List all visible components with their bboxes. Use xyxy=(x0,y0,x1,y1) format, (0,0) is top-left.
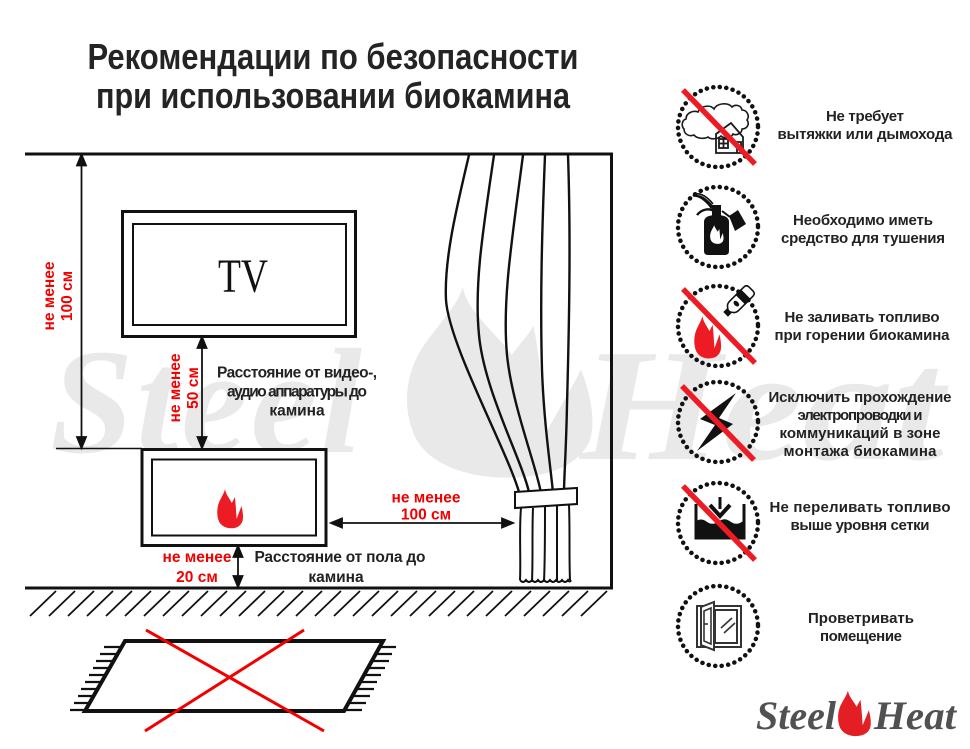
svg-text:при горении биокамина: при горении биокамина xyxy=(775,327,951,344)
svg-text:Steel: Steel xyxy=(756,693,837,738)
svg-text:Исключить прохождение: Исключить прохождение xyxy=(769,389,952,406)
svg-text:камина: камина xyxy=(269,403,325,420)
svg-text:Проветривать: Проветривать xyxy=(808,610,914,627)
svg-text:100 см: 100 см xyxy=(401,507,451,524)
svg-text:Не требует: Не требует xyxy=(826,108,904,125)
svg-text:монтажа биокамина: монтажа биокамина xyxy=(784,443,938,460)
svg-text:не менее: не менее xyxy=(392,490,461,507)
svg-text:коммуникаций в зоне: коммуникаций в зоне xyxy=(780,425,941,442)
svg-text:50 см: 50 см xyxy=(185,367,202,409)
svg-text:не менее: не менее xyxy=(163,549,232,566)
svg-text:вытяжки или дымохода: вытяжки или дымохода xyxy=(778,126,954,143)
svg-text:при использовании биокамина: при использовании биокамина xyxy=(96,75,571,116)
svg-text:аудио аппаратуры до: аудио аппаратуры до xyxy=(227,384,367,401)
svg-text:Рекомендации по безопасности: Рекомендации по безопасности xyxy=(88,36,579,77)
svg-text:электропроводки и: электропроводки и xyxy=(798,407,923,424)
svg-text:помещение: помещение xyxy=(820,628,902,645)
svg-text:TV: TV xyxy=(218,250,268,303)
svg-text:Расстояние от видео-,: Расстояние от видео-, xyxy=(217,365,377,382)
svg-text:выше уровня сетки: выше уровня сетки xyxy=(791,517,930,534)
svg-text:Не заливать топливо: Не заливать топливо xyxy=(785,309,940,326)
svg-text:Heat: Heat xyxy=(873,693,958,738)
svg-text:камина: камина xyxy=(308,569,364,586)
svg-text:Необходимо иметь: Необходимо иметь xyxy=(793,212,933,229)
svg-text:не менее: не менее xyxy=(167,353,184,422)
svg-text:не менее: не менее xyxy=(41,261,58,330)
svg-text:20 см: 20 см xyxy=(176,569,218,586)
svg-text:100 см: 100 см xyxy=(59,271,76,321)
svg-text:Расстояние от пола до: Расстояние от пола до xyxy=(255,549,426,566)
svg-text:средство для тушения: средство для тушения xyxy=(781,230,945,247)
svg-text:Не переливать топливо: Не переливать топливо xyxy=(770,499,951,516)
